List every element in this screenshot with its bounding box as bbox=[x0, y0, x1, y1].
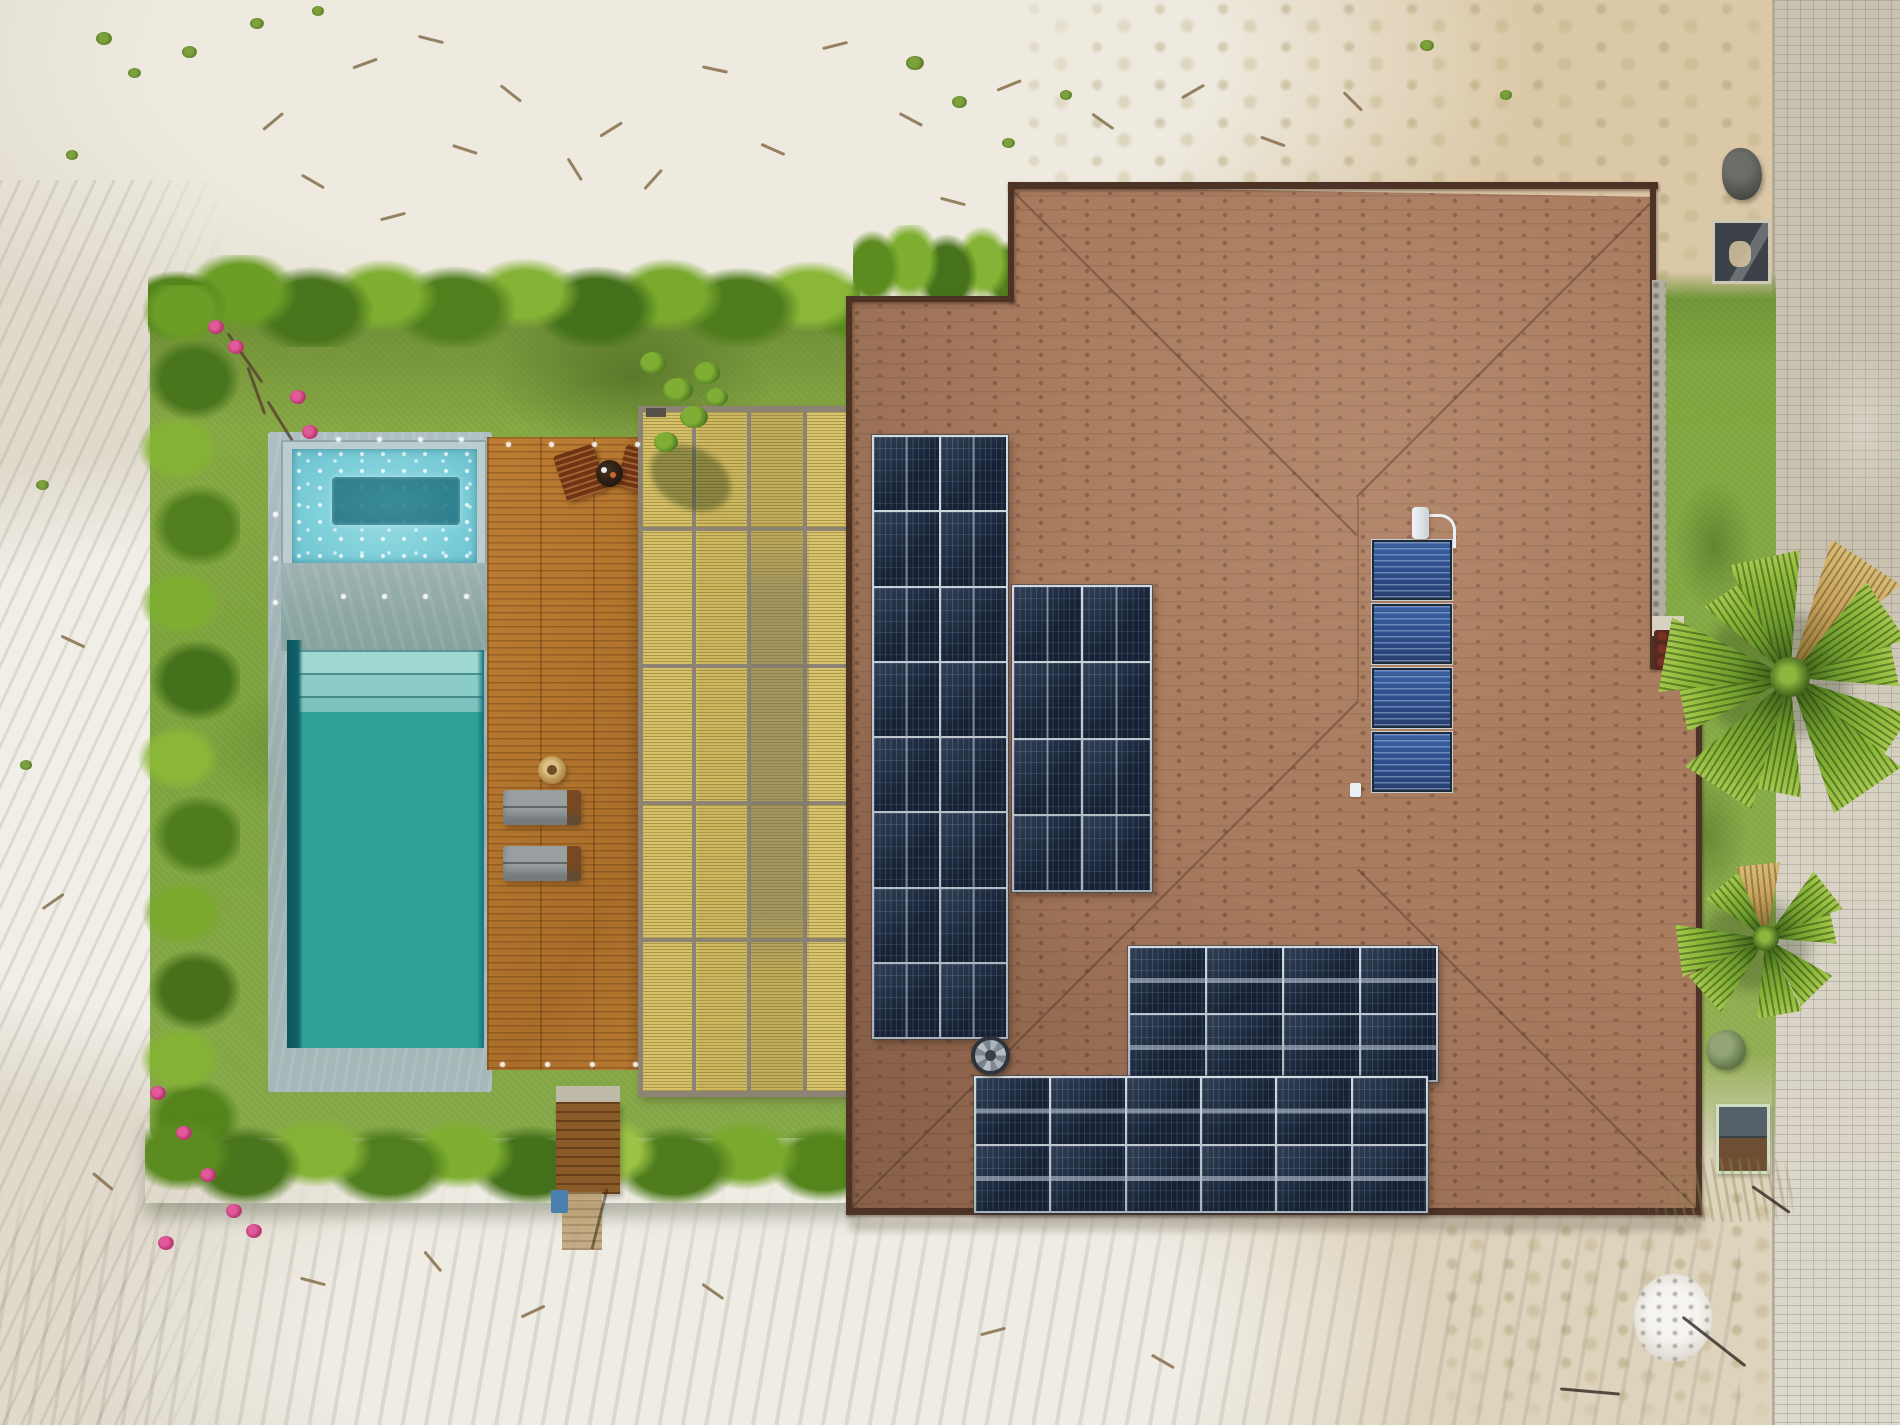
frangipani-leaves bbox=[640, 352, 666, 374]
weed-tuft bbox=[1002, 138, 1015, 148]
weed-tuft bbox=[182, 46, 197, 58]
solar-water-heater bbox=[1372, 540, 1452, 792]
solar-panel-cell bbox=[976, 1146, 1049, 1212]
walkway-steps bbox=[562, 1192, 602, 1250]
twig bbox=[761, 143, 786, 156]
weed-tuft bbox=[312, 6, 324, 16]
twig bbox=[643, 169, 662, 190]
pool-light bbox=[382, 594, 387, 599]
sun-lounger bbox=[503, 790, 581, 825]
twig bbox=[822, 41, 848, 50]
solar-panel-cell bbox=[941, 588, 1006, 661]
solar-panel-cell bbox=[1361, 1015, 1436, 1080]
deck-light bbox=[506, 442, 511, 447]
pool-light bbox=[273, 512, 278, 517]
palm-crown bbox=[1753, 925, 1779, 951]
solar-panel-cell bbox=[941, 964, 1006, 1037]
solar-array-tall bbox=[872, 435, 1008, 1039]
frangipani-leaves bbox=[654, 432, 678, 452]
dry-grass bbox=[1648, 1158, 1793, 1222]
deck-light bbox=[633, 1062, 638, 1067]
solar-panel-cell bbox=[1202, 1146, 1275, 1212]
pool-step bbox=[292, 673, 483, 696]
solar-panel-cell bbox=[941, 663, 1006, 736]
thermal-collector-panel bbox=[1372, 668, 1452, 728]
bougainvillea-flowers bbox=[158, 1236, 174, 1250]
solar-panel-cell bbox=[1284, 1015, 1359, 1080]
sun-lounger bbox=[503, 846, 581, 881]
solar-panel-cell bbox=[874, 889, 939, 962]
cup bbox=[610, 472, 616, 478]
solar-panel-cell bbox=[941, 813, 1006, 886]
weed-tuft bbox=[1060, 90, 1072, 100]
bougainvillea-flowers bbox=[200, 1168, 216, 1182]
weed-tuft bbox=[96, 32, 112, 45]
thermal-collector-panel bbox=[1372, 540, 1452, 600]
aerial-photo-scene bbox=[0, 0, 1900, 1425]
solar-panel-cell bbox=[1127, 1078, 1200, 1144]
ground-grate bbox=[1712, 220, 1771, 284]
solar-panel-cell bbox=[1277, 1078, 1350, 1144]
bougainvillea-flowers bbox=[228, 340, 244, 354]
weed-tuft bbox=[906, 56, 924, 70]
bougainvillea-flowers bbox=[226, 1204, 242, 1218]
pool-light bbox=[377, 437, 382, 442]
solar-panel-cell bbox=[1014, 740, 1081, 814]
twig bbox=[500, 84, 522, 102]
solar-panel-cell bbox=[1353, 1146, 1426, 1212]
bougainvillea-flowers bbox=[302, 425, 318, 439]
cup bbox=[601, 467, 607, 473]
bougainvillea-flowers bbox=[290, 390, 306, 404]
pool-light bbox=[336, 437, 341, 442]
solar-panel-cell bbox=[1014, 587, 1081, 661]
solar-panel-cell bbox=[874, 738, 939, 811]
deck-light bbox=[635, 442, 640, 447]
pool-terrace bbox=[281, 563, 487, 651]
wood-deck bbox=[487, 437, 643, 1070]
weed-tuft bbox=[250, 18, 264, 29]
solar-panel-cell bbox=[874, 512, 939, 585]
twig bbox=[452, 144, 478, 154]
solar-array-bottom-upper bbox=[1128, 946, 1438, 1082]
roof-eave bbox=[846, 296, 1014, 302]
solar-panel-cell bbox=[976, 1078, 1049, 1144]
round-bush bbox=[1706, 1030, 1746, 1070]
frangipani-leaves bbox=[694, 362, 720, 384]
bougainvillea-flowers bbox=[176, 1126, 192, 1140]
blue-mat bbox=[551, 1190, 568, 1213]
solar-panel-cell bbox=[1207, 1015, 1282, 1080]
pool-light bbox=[341, 594, 346, 599]
pool-light bbox=[273, 556, 278, 561]
twig bbox=[418, 35, 444, 44]
solar-panel-cell bbox=[1051, 1146, 1124, 1212]
hedge-top bbox=[148, 255, 860, 347]
deck-light bbox=[592, 442, 597, 447]
hedge-bottom bbox=[145, 1115, 860, 1203]
solar-panel-cell bbox=[1202, 1078, 1275, 1144]
solar-panel-cell bbox=[1130, 948, 1205, 1013]
spa-bench bbox=[332, 477, 460, 525]
deck-light bbox=[549, 442, 554, 447]
palm-crown bbox=[1770, 657, 1810, 697]
weed-tuft bbox=[128, 68, 141, 78]
solar-panel-cell bbox=[874, 813, 939, 886]
weed-tuft bbox=[952, 96, 967, 108]
twig bbox=[567, 158, 583, 181]
twig bbox=[940, 197, 966, 206]
deck-light bbox=[500, 1062, 505, 1067]
thermal-collector-panel bbox=[1372, 604, 1452, 664]
pool-light bbox=[459, 437, 464, 442]
solar-panel-cell bbox=[941, 437, 1006, 510]
twig bbox=[599, 121, 622, 137]
pool-light bbox=[423, 594, 428, 599]
pool-light bbox=[464, 594, 469, 599]
weathered-bamboo bbox=[749, 523, 809, 979]
solar-panel-cell bbox=[1083, 816, 1150, 890]
pergola-bracket bbox=[646, 408, 666, 417]
bougainvillea-flowers bbox=[246, 1224, 262, 1238]
solar-panel-cell bbox=[1051, 1078, 1124, 1144]
solar-panel-cell bbox=[1277, 1146, 1350, 1212]
water-heater-fitting bbox=[1350, 783, 1361, 797]
side-table bbox=[596, 460, 623, 487]
pool-light bbox=[273, 600, 278, 605]
roof-vent-fan bbox=[971, 1036, 1010, 1075]
white-debris-pile bbox=[1634, 1274, 1712, 1362]
weed-tuft bbox=[20, 760, 32, 770]
roof-ridge bbox=[1357, 498, 1359, 703]
twig bbox=[352, 58, 377, 69]
twig bbox=[702, 65, 728, 73]
pebble-wall bbox=[1652, 280, 1666, 625]
solar-panel-cell bbox=[1083, 663, 1150, 737]
twig bbox=[996, 79, 1021, 91]
weed-tuft bbox=[1500, 90, 1512, 100]
water-heater-pipe bbox=[1428, 514, 1456, 548]
solar-panel-cell bbox=[874, 964, 939, 1037]
pool-steps bbox=[292, 650, 483, 714]
roof-eave bbox=[846, 296, 852, 1213]
twig bbox=[262, 112, 284, 131]
thermal-collector-panel bbox=[1372, 732, 1452, 792]
solar-panel-cell bbox=[1014, 663, 1081, 737]
solar-panel-cell bbox=[874, 437, 939, 510]
rock bbox=[1722, 148, 1762, 200]
roof-eave bbox=[1008, 182, 1658, 189]
solar-panel-cell bbox=[1207, 948, 1282, 1013]
roof-eave bbox=[1008, 182, 1014, 302]
solar-panel-cell bbox=[1083, 740, 1150, 814]
deck-light bbox=[590, 1062, 595, 1067]
solar-array-middle bbox=[1012, 585, 1152, 892]
solar-panel-cell bbox=[1014, 816, 1081, 890]
frangipani-leaves bbox=[663, 378, 693, 402]
solar-panel-cell bbox=[874, 588, 939, 661]
bougainvillea-flowers bbox=[208, 320, 224, 334]
deck-light bbox=[545, 1062, 550, 1067]
water-heater-vent bbox=[1412, 507, 1429, 539]
hedge-left bbox=[138, 285, 240, 1145]
solar-panel-cell bbox=[1353, 1078, 1426, 1144]
straw-hat bbox=[538, 756, 566, 784]
solar-panel-cell bbox=[941, 512, 1006, 585]
wood-walkway bbox=[556, 1102, 620, 1194]
twig bbox=[301, 174, 325, 189]
roof-shadow bbox=[850, 1216, 1702, 1231]
solar-array-bottom-lower bbox=[974, 1076, 1428, 1213]
pool-water bbox=[292, 712, 483, 1048]
solar-panel-cell bbox=[1130, 1015, 1205, 1080]
bamboo-pergola bbox=[638, 406, 860, 1097]
solar-panel-cell bbox=[941, 738, 1006, 811]
pool-edge-shadow bbox=[287, 640, 303, 1048]
twig bbox=[380, 212, 406, 221]
pool-light bbox=[418, 437, 423, 442]
solar-panel-cell bbox=[1361, 948, 1436, 1013]
solar-panel-cell bbox=[1127, 1146, 1200, 1212]
solar-panel-cell bbox=[1284, 948, 1359, 1013]
pool-edge-shadow bbox=[477, 650, 484, 1048]
solar-panel-cell bbox=[1083, 587, 1150, 661]
frangipani-leaves bbox=[706, 388, 728, 406]
solar-panel-cell bbox=[941, 889, 1006, 962]
weed-tuft bbox=[66, 150, 78, 160]
frangipani-leaves bbox=[680, 406, 708, 428]
bougainvillea-flowers bbox=[150, 1086, 166, 1100]
solar-panel-cell bbox=[874, 663, 939, 736]
twig bbox=[899, 112, 923, 126]
pool-step bbox=[292, 650, 483, 673]
